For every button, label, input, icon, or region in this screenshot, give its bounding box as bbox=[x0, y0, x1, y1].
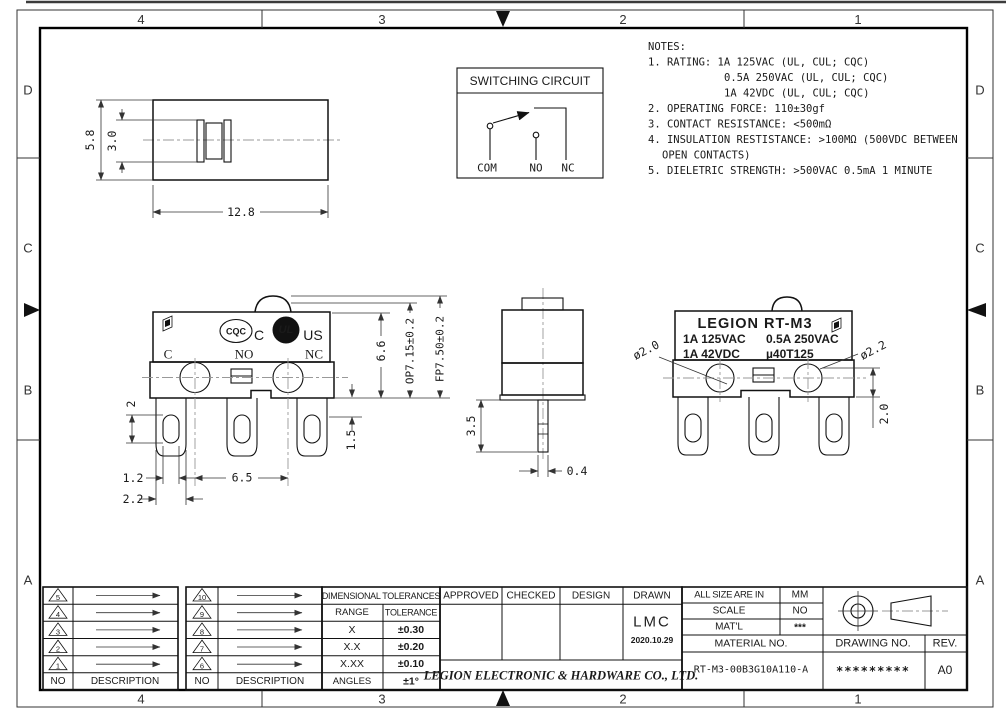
dim-6-5: 6.5 bbox=[232, 471, 253, 485]
company-name: LEGION ELECTRONIC & HARDWARE CO., LTD. bbox=[423, 669, 699, 683]
note-line: 5. DIELETRIC STRENGTH: >500VAC 0.5mA 1 M… bbox=[648, 165, 932, 177]
size-label: ALL SIZE ARE IN bbox=[694, 590, 764, 601]
tolerance-col-range: RANGE bbox=[335, 607, 369, 618]
note-line: 2. OPERATING FORCE: 110±30gf bbox=[648, 103, 825, 115]
rev-num: 10 bbox=[198, 593, 206, 602]
rev-num: 3 bbox=[56, 627, 60, 636]
matl-value: *** bbox=[794, 623, 806, 634]
dim-2: 2 bbox=[124, 401, 138, 408]
tol-val-xxx: ±0.10 bbox=[398, 658, 424, 670]
size-unit: MM bbox=[792, 590, 809, 601]
back-marking-title: LEGION RT-M3 bbox=[697, 316, 812, 332]
dim-6-6: 6.6 bbox=[374, 341, 388, 362]
zone-col-3-bottom: 3 bbox=[378, 692, 385, 707]
tol-range-x: X bbox=[348, 624, 355, 636]
dim-12-8: 12.8 bbox=[227, 205, 255, 219]
note-line: 1. RATING: 1A 125VAC (UL, CUL; CQC) bbox=[648, 57, 869, 69]
dim-3-5: 3.5 bbox=[464, 416, 478, 437]
zone-col-2-bottom: 2 bbox=[619, 692, 626, 707]
circuit-no-label: NO bbox=[529, 162, 542, 175]
material-no-label: MATERIAL NO. bbox=[715, 638, 788, 650]
tol-range-xx: X.X bbox=[344, 641, 361, 653]
zone-row-c-left: C bbox=[23, 241, 32, 256]
drawing-sheet: 4 3 2 1 4 3 2 1 D C B A D C B A NOTES: 1… bbox=[0, 0, 1006, 719]
zone-col-1-top: 1 bbox=[854, 12, 861, 27]
rev-num: 6 bbox=[200, 662, 204, 671]
drawing-no-label: DRAWING NO. bbox=[835, 638, 910, 650]
zone-row-b-right: B bbox=[976, 383, 985, 398]
rev-label: REV. bbox=[933, 638, 958, 650]
note-line: OPEN CONTACTS) bbox=[662, 150, 751, 162]
tolerance-title: DIMENSIONAL TOLERANCES bbox=[322, 591, 441, 601]
tol-val-xx: ±0.20 bbox=[398, 641, 424, 653]
drawn-date-value: 2020.10.29 bbox=[631, 635, 674, 645]
back-marking-rating1a: 1A 125VAC bbox=[683, 332, 746, 346]
back-marking-rating2a: 1A 42VDC bbox=[683, 347, 740, 361]
circuit-com-label: COM bbox=[477, 162, 497, 175]
tol-val-x: ±0.30 bbox=[398, 624, 424, 636]
dim-2-0-offset: 2.0 bbox=[877, 404, 891, 425]
ul-logo-text: UL bbox=[279, 324, 294, 336]
back-marking-rating2b: µ40T125 bbox=[766, 347, 814, 361]
dim-fp: FP7.50±0.2 bbox=[434, 316, 447, 382]
back-marking-rating1b: 0.5A 250VAC bbox=[766, 332, 839, 346]
zone-col-4-bottom: 4 bbox=[137, 692, 144, 707]
material-no-value: RT-M3-00B3G10A110-A bbox=[694, 665, 808, 676]
approved-header: APPROVED bbox=[443, 590, 499, 601]
engineering-drawing-svg: 4 3 2 1 4 3 2 1 D C B A D C B A NOTES: 1… bbox=[0, 0, 1006, 719]
zone-row-a-right: A bbox=[976, 573, 985, 588]
rev-num: 9 bbox=[200, 610, 204, 619]
switching-circuit-title: SWITCHING CIRCUIT bbox=[470, 74, 591, 88]
tolerance-col-tol: TOLERANCE bbox=[385, 608, 437, 618]
scale-value: NO bbox=[793, 606, 808, 617]
notes-title: NOTES: bbox=[648, 41, 686, 53]
zone-row-b-left: B bbox=[24, 383, 33, 398]
design-header: DESIGN bbox=[572, 590, 610, 601]
ul-mark-c: C bbox=[254, 327, 264, 343]
rev-num: 1 bbox=[56, 662, 60, 671]
dim-2-2: 2.2 bbox=[123, 492, 144, 506]
rev-no-header: NO bbox=[51, 676, 66, 687]
zone-row-d-right: D bbox=[975, 83, 984, 98]
zone-col-1-bottom: 1 bbox=[854, 692, 861, 707]
drawn-by-value: LMC bbox=[633, 614, 671, 631]
terminal-label-no: NO bbox=[235, 347, 254, 362]
tol-range-angles: ANGLES bbox=[333, 676, 372, 687]
dim-0-4: 0.4 bbox=[567, 464, 588, 478]
cqc-logo-text: CQC bbox=[226, 327, 247, 337]
zone-row-d-left: D bbox=[23, 83, 32, 98]
rev-value: A0 bbox=[938, 663, 953, 677]
tol-range-xxx: X.XX bbox=[340, 658, 364, 670]
rev-desc-header: DESCRIPTION bbox=[236, 676, 304, 687]
zone-col-2-top: 2 bbox=[619, 12, 626, 27]
zone-col-4-top: 4 bbox=[137, 12, 144, 27]
zone-col-3-top: 3 bbox=[378, 12, 385, 27]
checked-header: CHECKED bbox=[507, 590, 556, 601]
dim-1-5: 1.5 bbox=[344, 430, 358, 451]
rev-num: 8 bbox=[200, 627, 204, 636]
terminal-label-c: C bbox=[164, 347, 173, 362]
tol-val-angles: ±1° bbox=[403, 675, 419, 687]
note-line: 3. CONTACT RESISTANCE: <500mΩ bbox=[648, 119, 831, 131]
dim-3-0: 3.0 bbox=[105, 131, 119, 152]
rev-num: 4 bbox=[56, 610, 60, 619]
rev-num: 2 bbox=[56, 645, 60, 654]
rev-num: 7 bbox=[200, 645, 204, 654]
rev-no-header: NO bbox=[195, 676, 210, 687]
dim-5-8: 5.8 bbox=[83, 130, 97, 151]
note-line: 1A 42VDC (UL, CUL; CQC) bbox=[724, 88, 869, 100]
circuit-nc-label: NC bbox=[561, 162, 574, 175]
zone-row-a-left: A bbox=[24, 573, 33, 588]
rev-num: 5 bbox=[56, 593, 60, 602]
note-line: 0.5A 250VAC (UL, CUL; CQC) bbox=[724, 72, 888, 84]
terminal-label-nc: NC bbox=[305, 347, 323, 362]
ul-mark-us: US bbox=[303, 327, 322, 343]
scale-label: SCALE bbox=[713, 606, 746, 617]
dim-op: OP7.15±0.2 bbox=[404, 318, 417, 384]
dim-1-2: 1.2 bbox=[123, 471, 144, 485]
drawn-header: DRAWN bbox=[633, 590, 670, 601]
rev-desc-header: DESCRIPTION bbox=[91, 676, 159, 687]
note-line: 4. INSULATION RESTISTANCE: >100MΩ (500VD… bbox=[648, 134, 958, 146]
zone-row-c-right: C bbox=[975, 241, 984, 256]
drawing-no-value: ********* bbox=[836, 664, 910, 678]
matl-label: MAT'L bbox=[715, 622, 743, 633]
